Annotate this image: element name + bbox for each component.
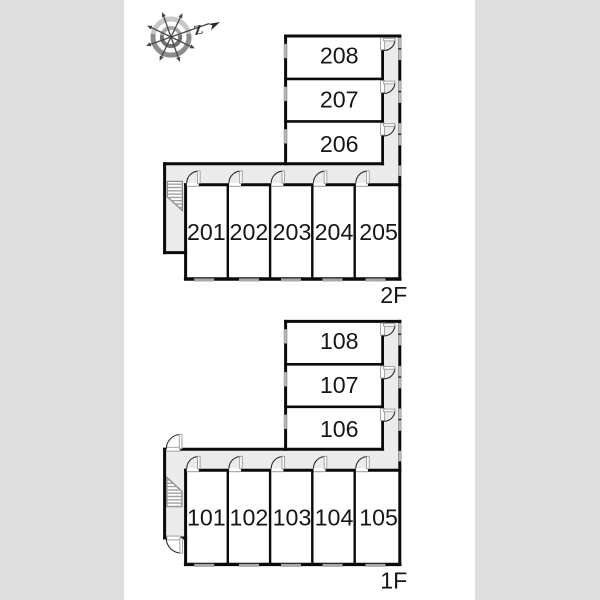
svg-text:107: 107 [320,372,359,398]
svg-text:207: 207 [320,87,359,113]
svg-text:2F: 2F [380,282,407,308]
svg-text:204: 204 [315,219,354,245]
svg-text:201: 201 [187,219,226,245]
svg-text:103: 103 [273,505,312,531]
svg-text:208: 208 [320,43,359,69]
svg-text:102: 102 [230,505,269,531]
svg-text:108: 108 [320,328,359,354]
svg-text:105: 105 [359,505,398,531]
svg-text:205: 205 [359,219,398,245]
svg-text:1F: 1F [380,568,407,594]
svg-text:206: 206 [320,131,359,157]
svg-text:202: 202 [230,219,269,245]
svg-text:203: 203 [273,219,312,245]
svg-text:101: 101 [187,505,226,531]
svg-text:104: 104 [315,505,354,531]
svg-text:106: 106 [320,416,359,442]
